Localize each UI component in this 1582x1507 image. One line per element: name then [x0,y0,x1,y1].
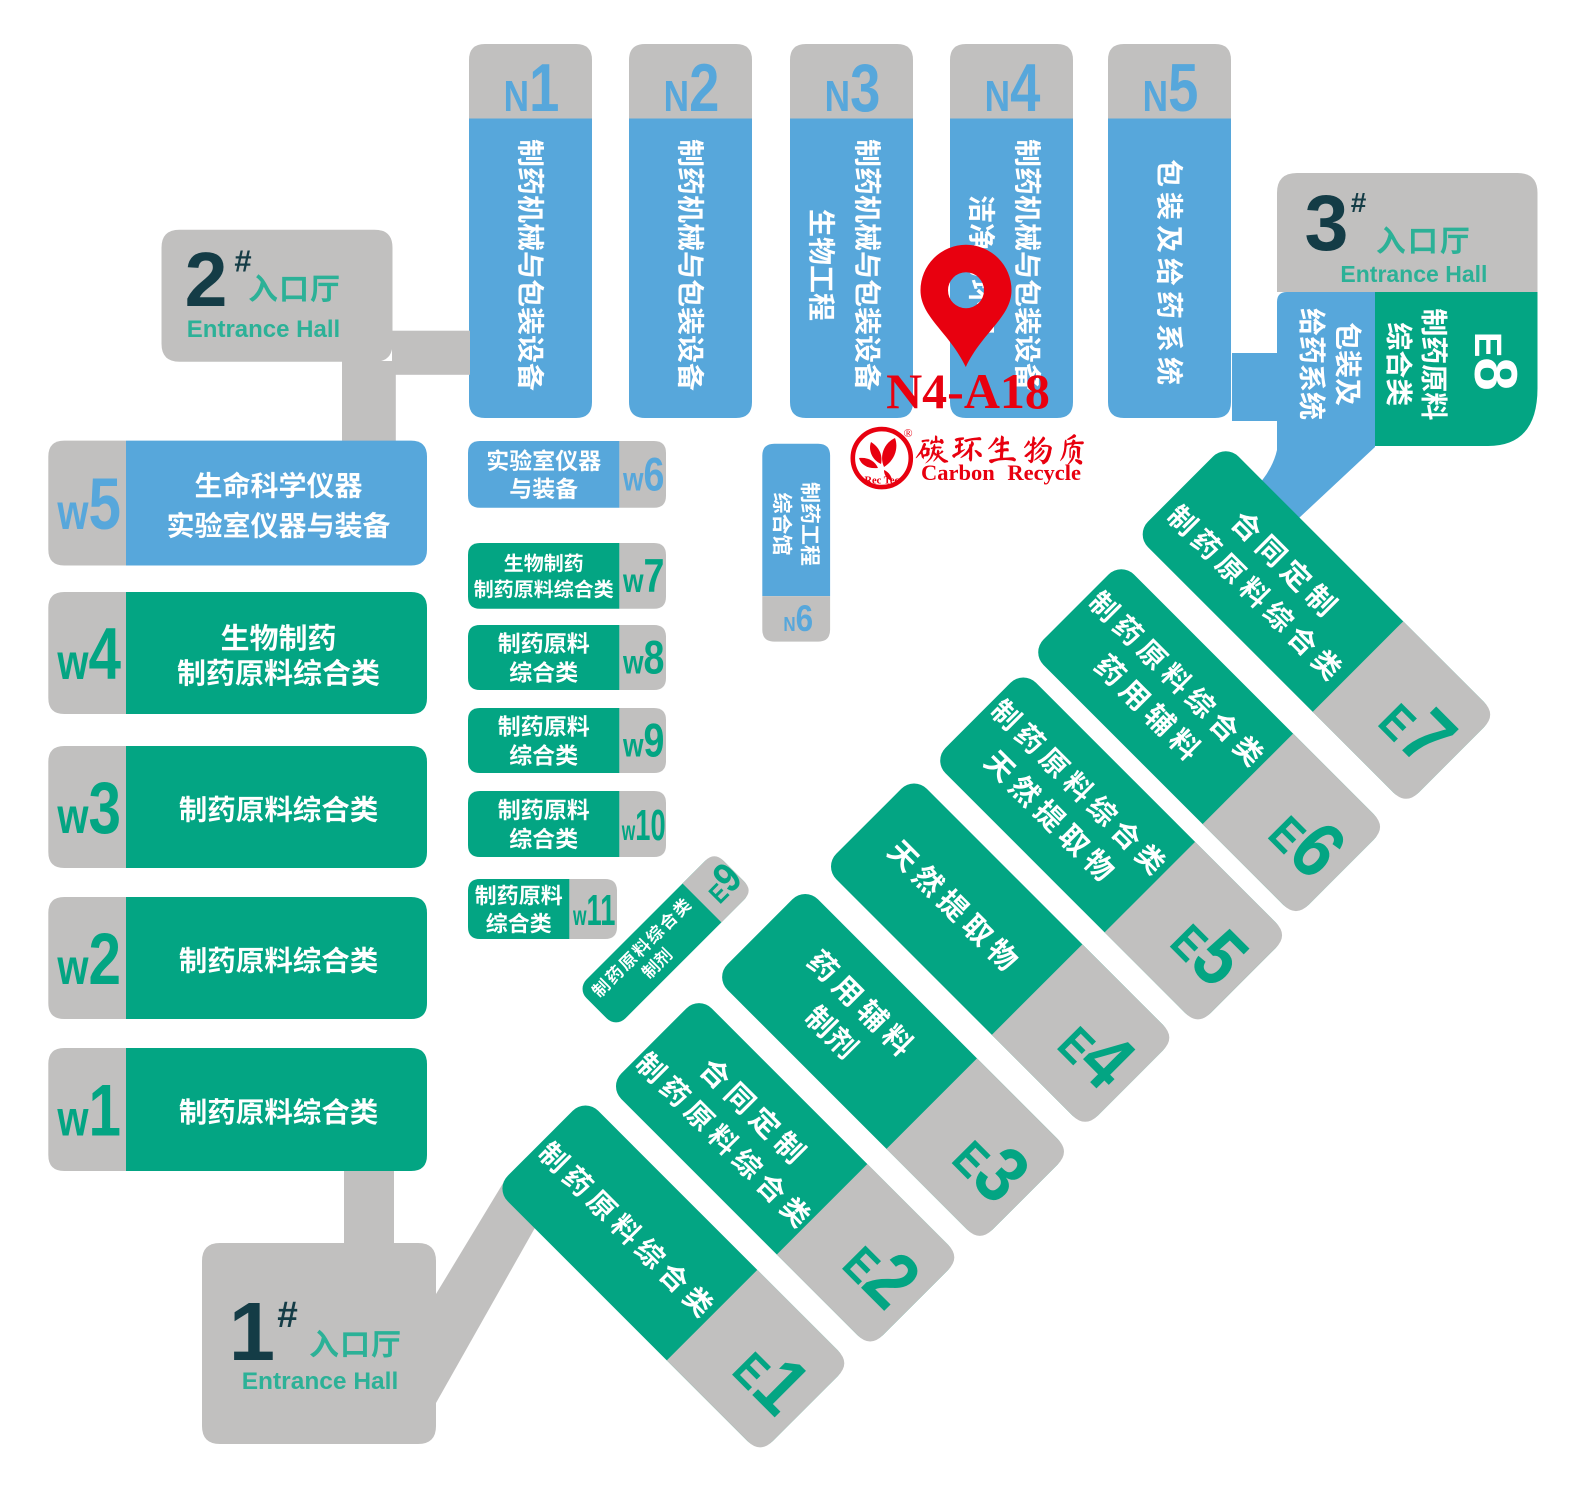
svg-text:3: 3 [1305,178,1349,267]
svg-text:#: # [277,1294,298,1335]
svg-text:®: ® [903,426,912,440]
svg-text:Carbon Recycle: Carbon Recycle [921,460,1081,485]
svg-text:#: # [234,244,251,279]
svg-text:Entrance Hall: Entrance Hall [187,316,340,343]
svg-text:Rec Tec: Rec Tec [864,476,899,487]
svg-text:1: 1 [229,1285,275,1378]
svg-text:Entrance Hall: Entrance Hall [1340,261,1487,287]
svg-text:Entrance Hall: Entrance Hall [242,1368,399,1395]
svg-text:2: 2 [185,237,228,323]
svg-text:#: # [1351,187,1367,218]
svg-text:N4-A18: N4-A18 [886,363,1050,419]
